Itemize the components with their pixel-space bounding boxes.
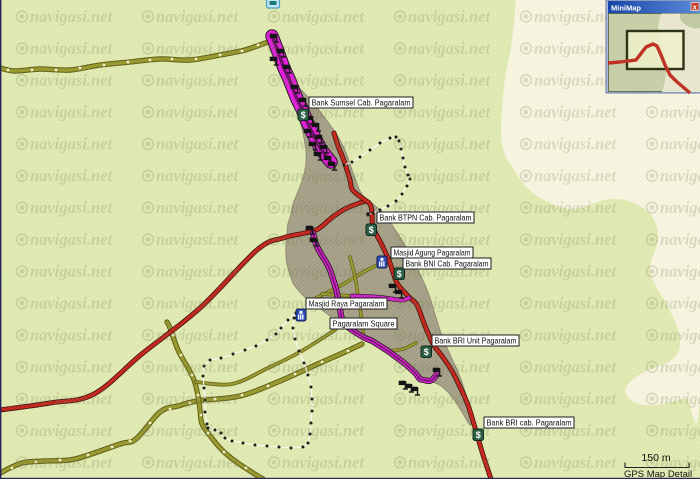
svg-text:$: $ <box>424 347 429 357</box>
svg-text:Masjid Agung Pagaralam: Masjid Agung Pagaralam <box>394 249 471 258</box>
svg-text:Pagaralam Square: Pagaralam Square <box>333 320 396 329</box>
svg-text:GPS Map Detail: GPS Map Detail <box>624 469 692 479</box>
svg-text:150 m: 150 m <box>641 452 670 464</box>
svg-text:Bank Sumsel Cab. Pagaralam: Bank Sumsel Cab. Pagaralam <box>312 99 411 108</box>
svg-text:Masjid Raya Pagaralam: Masjid Raya Pagaralam <box>309 300 385 309</box>
svg-text:Bank BRI Unit Pagaralam: Bank BRI Unit Pagaralam <box>435 337 517 346</box>
svg-text:$: $ <box>369 225 374 235</box>
svg-text:MiniMap: MiniMap <box>611 4 641 13</box>
svg-text:Bank BRI cab. Pagaralam: Bank BRI cab. Pagaralam <box>487 419 572 428</box>
svg-text:Bank BTPN Cab. Pagaralam: Bank BTPN Cab. Pagaralam <box>380 214 472 223</box>
svg-text:$: $ <box>301 110 306 120</box>
svg-text:Bank BNI Cab. Pagaralam: Bank BNI Cab. Pagaralam <box>406 260 489 269</box>
svg-text:$: $ <box>397 269 402 279</box>
svg-text:$: $ <box>476 430 481 440</box>
